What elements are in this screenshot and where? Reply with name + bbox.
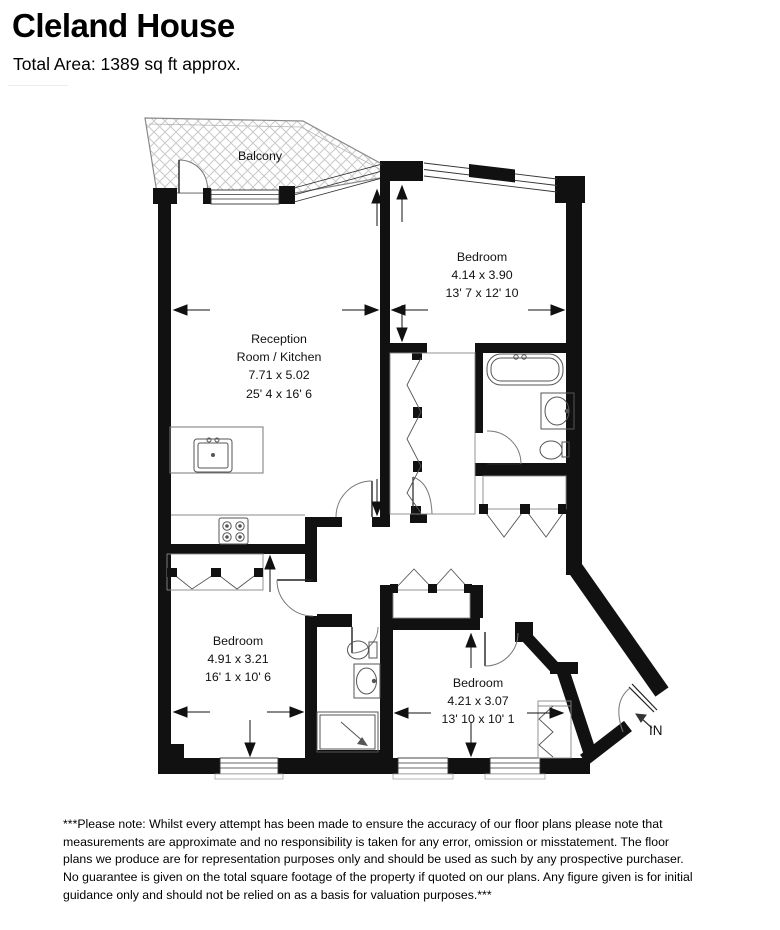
door-swing-icon xyxy=(487,431,521,464)
wall-ensuite-east xyxy=(380,585,393,758)
wall-top-jamb xyxy=(203,188,211,204)
room-dims-metric: 4.91 x 3.21 xyxy=(165,650,311,668)
wall-reception-bottom-a xyxy=(317,517,342,527)
bathroom-fixtures xyxy=(487,354,574,459)
wall-reception-bottom-b xyxy=(372,517,390,527)
door-swing-icon xyxy=(485,632,518,666)
wall-bathroom-west-upper xyxy=(475,343,483,433)
wall-corridor-bottom xyxy=(410,514,427,523)
bedroom-bottom-right-label: Bedroom 4.21 x 3.07 13' 10 x 10' 1 xyxy=(405,674,551,729)
wall-ne-pillar xyxy=(555,176,585,203)
room-name: Bedroom xyxy=(405,674,551,692)
wall-reception-divider xyxy=(380,168,390,517)
bedroom-bottom-left-label: Bedroom 4.91 x 3.21 16' 1 x 10' 6 xyxy=(165,632,311,687)
sink-icon xyxy=(194,438,232,472)
toilet-icon xyxy=(540,441,569,459)
wardrobe-icon xyxy=(390,569,472,618)
wardrobe-icon xyxy=(390,353,475,514)
room-dims-imperial: 13' 10 x 10' 1 xyxy=(405,710,551,728)
room-dims-imperial: 25' 4 x 16' 6 xyxy=(206,385,352,403)
basin-icon xyxy=(354,664,380,698)
room-dims-imperial: 13' 7 x 12' 10 xyxy=(409,284,555,302)
wall-bedroom-bottom xyxy=(388,343,427,353)
disclaimer-text: ***Please note: Whilst every attempt has… xyxy=(63,816,735,905)
reception-label: Reception Room / Kitchen 7.71 x 5.02 25'… xyxy=(206,330,352,403)
wall-step xyxy=(305,517,317,582)
room-dims-metric: 4.21 x 3.07 xyxy=(405,692,551,710)
wall-bedroom-right-top xyxy=(393,618,480,630)
room-dims-metric: 4.14 x 3.90 xyxy=(409,266,555,284)
window-icon xyxy=(215,758,283,779)
room-name: Bedroom xyxy=(409,248,555,266)
door-swing-icon xyxy=(352,627,378,653)
wall-bedroom-right-se xyxy=(562,668,590,753)
wall-bedroom-right-diag xyxy=(520,630,557,670)
wall-top-left xyxy=(153,188,177,204)
room-dims-imperial: 16' 1 x 10' 6 xyxy=(165,668,311,686)
hob-icon xyxy=(219,518,248,544)
door-swing-icon xyxy=(336,481,372,517)
wall-right xyxy=(566,200,582,575)
wall-bathroom-top xyxy=(475,343,574,353)
kitchen-island xyxy=(170,427,263,473)
shower-icon xyxy=(317,712,378,752)
wardrobe-icon xyxy=(479,476,566,537)
balcony-label: Balcony xyxy=(204,147,316,165)
bedroom-top-right-label: Bedroom 4.14 x 3.90 13' 7 x 12' 10 xyxy=(409,248,555,303)
floorplan-page: Cleland House Total Area: 1389 sq ft app… xyxy=(0,0,780,930)
wall-ensuite-top xyxy=(317,614,352,627)
window-icon xyxy=(485,758,545,779)
kitchen-fixtures xyxy=(170,427,305,544)
room-name: Reception xyxy=(206,330,352,348)
wall-bedroom-top-mid xyxy=(469,164,515,183)
window-icon xyxy=(393,758,453,779)
entrance-label: IN xyxy=(649,722,693,740)
window-icon xyxy=(211,190,279,204)
bathtub-icon xyxy=(487,354,563,385)
ensuite-fixtures xyxy=(317,641,380,752)
room-dims-metric: 7.71 x 5.02 xyxy=(206,366,352,384)
wall-ensuite-under-block xyxy=(310,750,390,774)
wall-bathroom-bottom xyxy=(475,463,566,476)
wall-reception-bottom-left xyxy=(158,544,310,554)
door-swing-icon xyxy=(277,580,313,616)
wall-diagonal-upper xyxy=(575,568,662,692)
room-name: Room / Kitchen xyxy=(206,348,352,366)
floorplan-drawing xyxy=(0,0,780,930)
wall-top-pier xyxy=(279,186,295,204)
wardrobe-icon xyxy=(167,554,263,590)
room-name: Bedroom xyxy=(165,632,311,650)
